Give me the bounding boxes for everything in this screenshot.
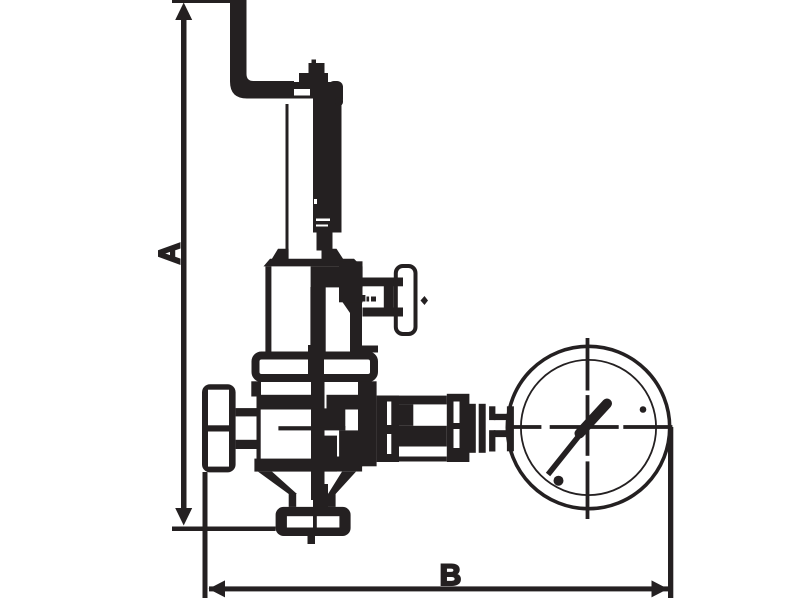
svg-text:A: A <box>154 243 187 265</box>
svg-text:B: B <box>440 559 462 592</box>
